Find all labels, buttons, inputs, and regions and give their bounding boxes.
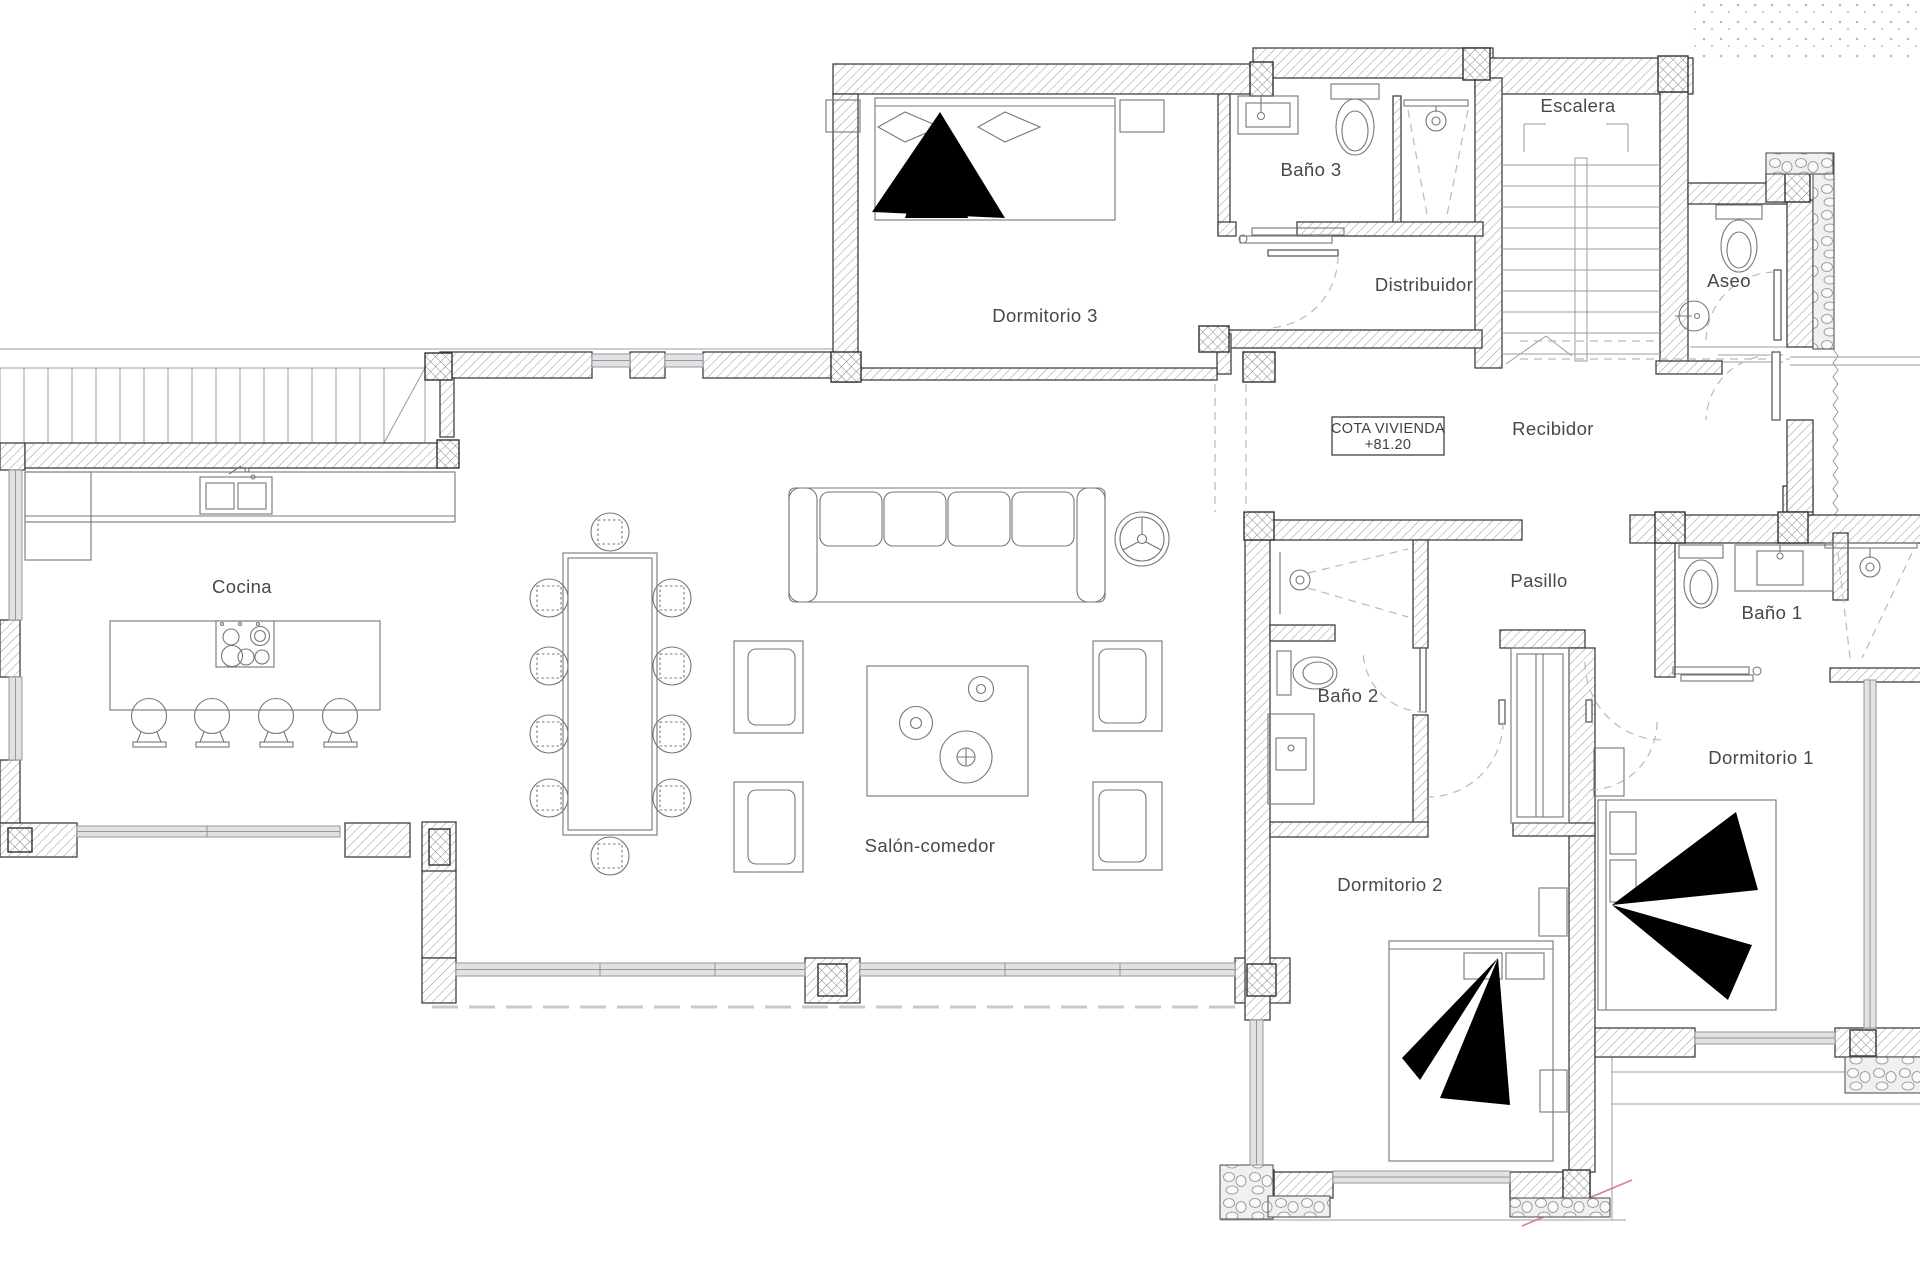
bed-dormitorio1	[1594, 748, 1776, 1010]
floor-plan-page: COTA VIVIENDA +81.20 Cocina Salón-comedo…	[0, 0, 1920, 1280]
pillars	[8, 48, 1876, 1200]
kitchen-island	[110, 621, 380, 710]
room-label-distribuidor: Distribuidor	[1375, 274, 1473, 295]
toilet-bano1	[1679, 545, 1723, 608]
floor-plan-drawing: COTA VIVIENDA +81.20 Cocina Salón-comedo…	[0, 0, 1920, 1280]
sink-bano3	[1238, 96, 1298, 134]
vanity-bano2	[1268, 714, 1314, 804]
coffee-table	[867, 666, 1028, 796]
room-label-recibidor: Recibidor	[1512, 418, 1594, 439]
vanity-bano1	[1735, 545, 1833, 591]
toilet-aseo	[1716, 205, 1762, 272]
room-label-bano1: Baño 1	[1741, 602, 1802, 623]
room-label-dormitorio1: Dormitorio 1	[1708, 747, 1814, 768]
wardrobe	[1511, 648, 1569, 823]
room-label-salon-comedor: Salón-comedor	[865, 835, 996, 856]
room-label-pasillo: Pasillo	[1510, 570, 1567, 591]
room-label-aseo: Aseo	[1707, 270, 1751, 291]
sofa	[789, 488, 1105, 602]
kitchen	[25, 466, 455, 747]
bed-dormitorio3	[826, 98, 1164, 220]
bar-stools	[132, 699, 358, 748]
bed-dormitorio2	[1389, 888, 1567, 1161]
dining-set	[530, 513, 691, 875]
hedge-line	[1833, 349, 1838, 531]
staircase	[1502, 124, 1660, 364]
cota-line2: +81.20	[1365, 437, 1412, 453]
dining-chairs	[530, 513, 691, 875]
room-label-cocina: Cocina	[212, 576, 272, 597]
cota-box: COTA VIVIENDA +81.20	[1331, 417, 1445, 455]
room-label-bano2: Baño 2	[1317, 685, 1378, 706]
shower-bano2	[1280, 552, 1310, 614]
cota-line1: COTA VIVIENDA	[1331, 421, 1445, 437]
room-label-escalera: Escalera	[1540, 95, 1615, 116]
walls	[0, 48, 1920, 1200]
ceiling-fan	[1115, 512, 1169, 566]
room-label-bano3: Baño 3	[1280, 159, 1341, 180]
sliding-door-bano1	[1673, 667, 1761, 681]
doors	[1239, 228, 1781, 797]
room-label-dormitorio3: Dormitorio 3	[992, 305, 1098, 326]
toilet-bano3	[1331, 84, 1379, 155]
room-label-dormitorio2: Dormitorio 2	[1337, 874, 1443, 895]
living-area	[734, 488, 1169, 872]
kitchen-counter	[25, 466, 455, 560]
shower-distribuidor	[1404, 100, 1468, 131]
